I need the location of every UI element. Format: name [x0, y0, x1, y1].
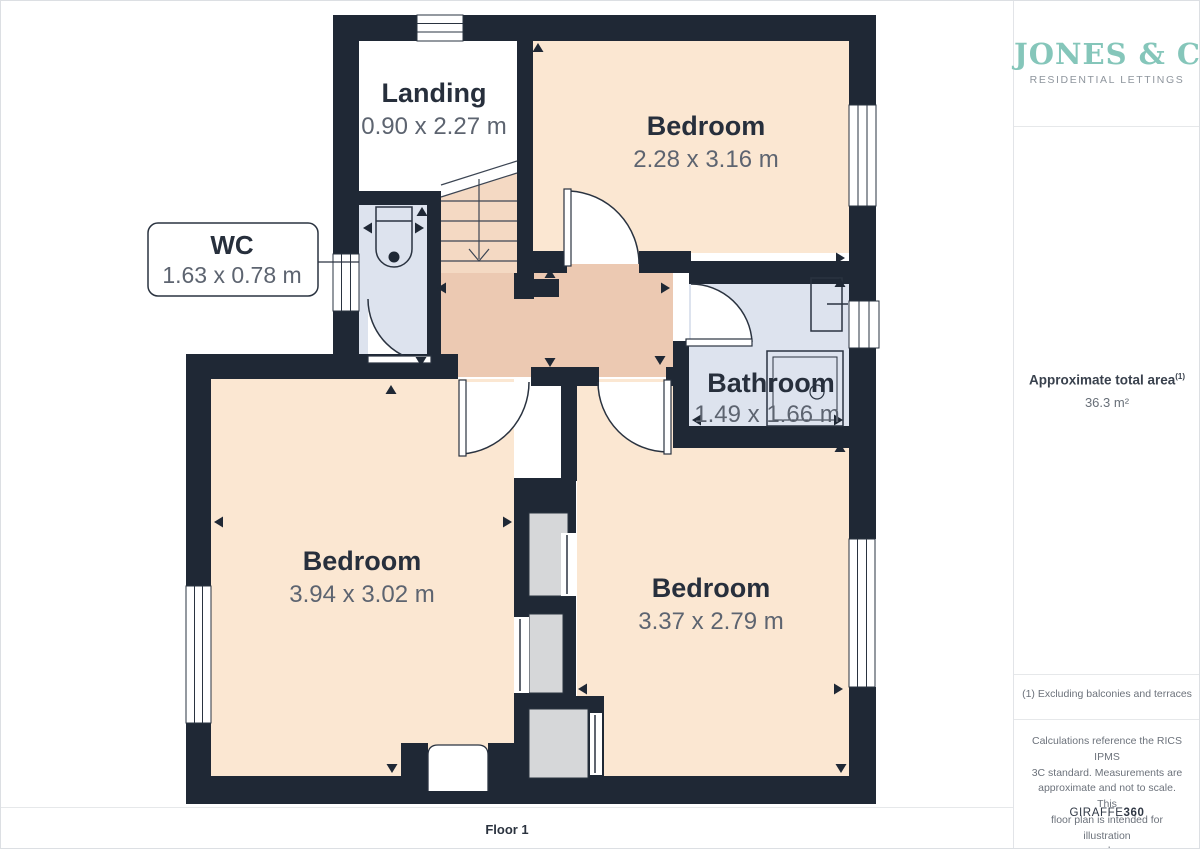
- floor-label: Floor 1: [485, 822, 528, 837]
- bedroom-right-dimensions: 3.37 x 2.79 m: [638, 608, 783, 635]
- disclaimer-line: only.: [1027, 844, 1187, 849]
- agency-logo: JONES & CO RESIDENTIAL LETTINGS: [1014, 37, 1200, 86]
- landing-dimensions: 0.90 x 2.27 m: [361, 113, 506, 140]
- bedroom-left-label: Bedroom: [303, 546, 422, 576]
- wc-callout: WC 1.63 x 0.78 m: [148, 223, 359, 296]
- agency-name: JONES & CO: [1014, 37, 1200, 71]
- sidebar-divider: [1014, 126, 1200, 127]
- door-leaf-bedroom-left: [459, 380, 466, 456]
- disclaimer-line: Calculations reference the RICS IPMS: [1027, 734, 1187, 766]
- shaft-bottom: [529, 709, 588, 778]
- bedroom-left-dimensions: 3.94 x 3.02 m: [289, 581, 434, 608]
- area-footnote: (1) Excluding balconies and terraces: [1014, 688, 1200, 700]
- landing-label: Landing: [382, 78, 487, 108]
- floorplan-page: WC 1.63 x 0.78 m Landing 0.90 x 2.27 m B…: [0, 0, 1200, 849]
- disclaimer: Calculations reference the RICS IPMS 3C …: [1027, 734, 1187, 849]
- provider-logo: GIRAFFE360: [1014, 807, 1200, 819]
- bedroom-top-dimensions: 2.28 x 3.16 m: [633, 146, 778, 173]
- door-leaf-bedroom-top: [564, 189, 571, 266]
- provider-name: GIRAFFE: [1069, 807, 1123, 819]
- shaft-lower: [529, 614, 563, 693]
- door-leaf-bathroom: [686, 339, 752, 346]
- total-area-value: 36.3 m²: [1014, 395, 1200, 410]
- floor-label-bar: Floor 1: [1, 807, 1013, 849]
- disclaimer-line: 3C standard. Measurements are: [1027, 766, 1187, 782]
- bedroom-top-label: Bedroom: [647, 111, 766, 141]
- total-area-footnote-marker: (1): [1175, 372, 1185, 381]
- total-area-block: Approximate total area(1) 36.3 m²: [1014, 372, 1200, 410]
- chimney-recess: [428, 745, 488, 791]
- provider-suffix: 360: [1124, 807, 1145, 819]
- floorplan-svg: WC 1.63 x 0.78 m Landing 0.90 x 2.27 m B…: [1, 1, 1013, 807]
- bedroom-right-label: Bedroom: [652, 573, 771, 603]
- total-area-title: Approximate total area(1): [1014, 372, 1200, 388]
- door-leaf-bedroom-right: [664, 380, 671, 454]
- bathroom-door-opening: [673, 286, 689, 341]
- sidebar-divider: [1014, 719, 1200, 720]
- bathroom-dimensions: 1.49 x 1.66 m: [694, 401, 839, 428]
- wc-dimensions: 1.63 x 0.78 m: [162, 262, 301, 288]
- window-bathroom: [849, 301, 879, 348]
- sidebar: JONES & CO RESIDENTIAL LETTINGS Approxim…: [1013, 1, 1200, 848]
- bathroom-label: Bathroom: [707, 368, 835, 398]
- window-bedroom-left: [186, 586, 211, 723]
- window-bedroom-right: [849, 539, 875, 687]
- agency-tagline: RESIDENTIAL LETTINGS: [1014, 74, 1200, 86]
- window-landing: [417, 15, 463, 41]
- total-area-title-text: Approximate total area: [1029, 373, 1175, 388]
- window-bedroom-top: [849, 105, 876, 206]
- wc-label: WC: [210, 230, 254, 260]
- floorplan-drawing: WC 1.63 x 0.78 m Landing 0.90 x 2.27 m B…: [1, 1, 1013, 807]
- sidebar-divider: [1014, 674, 1200, 675]
